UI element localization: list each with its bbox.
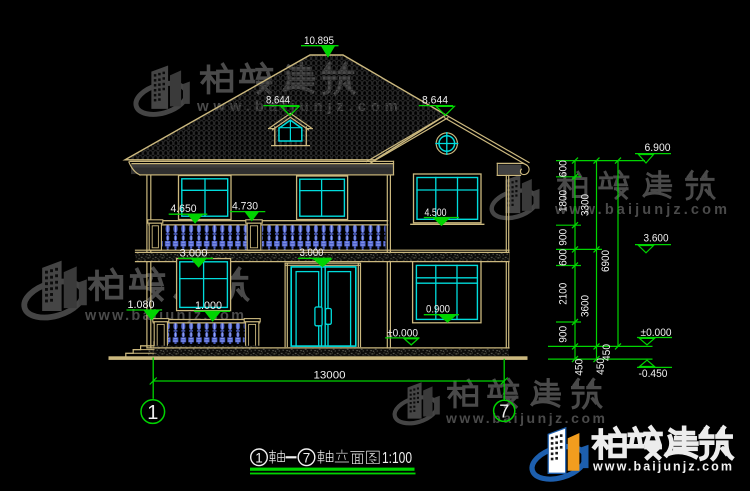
svg-text:450: 450 — [574, 359, 586, 376]
svg-text:8.644: 8.644 — [266, 94, 290, 106]
svg-text:6.900: 6.900 — [645, 142, 671, 154]
svg-text:-0.450: -0.450 — [639, 368, 668, 380]
svg-text:7: 7 — [499, 402, 509, 422]
svg-text:1: 1 — [255, 451, 263, 466]
svg-text:900: 900 — [558, 326, 570, 343]
svg-text:10.895: 10.895 — [304, 35, 334, 47]
svg-text:1:100: 1:100 — [382, 450, 412, 467]
svg-text:1.080: 1.080 — [128, 299, 155, 311]
svg-text:600: 600 — [558, 160, 570, 177]
svg-text:1800: 1800 — [558, 190, 570, 212]
svg-text:3.000: 3.000 — [180, 248, 208, 260]
svg-text:6900: 6900 — [600, 250, 612, 272]
svg-text:13000: 13000 — [314, 370, 346, 382]
svg-text:±0.000: ±0.000 — [387, 327, 418, 339]
svg-text:3.600: 3.600 — [644, 232, 669, 244]
svg-text:4.650: 4.650 — [171, 203, 197, 215]
svg-text:2100: 2100 — [558, 283, 570, 305]
svg-text:1.000: 1.000 — [195, 300, 222, 312]
svg-text:1: 1 — [147, 402, 158, 424]
svg-text:3600: 3600 — [580, 295, 592, 317]
svg-text:4.500: 4.500 — [425, 207, 447, 219]
svg-text:600: 600 — [558, 249, 570, 266]
svg-text:3300: 3300 — [580, 194, 592, 216]
svg-text:900: 900 — [558, 229, 570, 246]
svg-text:7: 7 — [303, 451, 311, 466]
svg-text:0.900: 0.900 — [426, 304, 450, 316]
svg-text:450: 450 — [601, 344, 613, 361]
svg-text:±0.000: ±0.000 — [641, 327, 672, 339]
svg-text:4.730: 4.730 — [232, 201, 258, 213]
svg-text:8.644: 8.644 — [422, 94, 448, 106]
svg-text:3.000: 3.000 — [300, 247, 324, 259]
